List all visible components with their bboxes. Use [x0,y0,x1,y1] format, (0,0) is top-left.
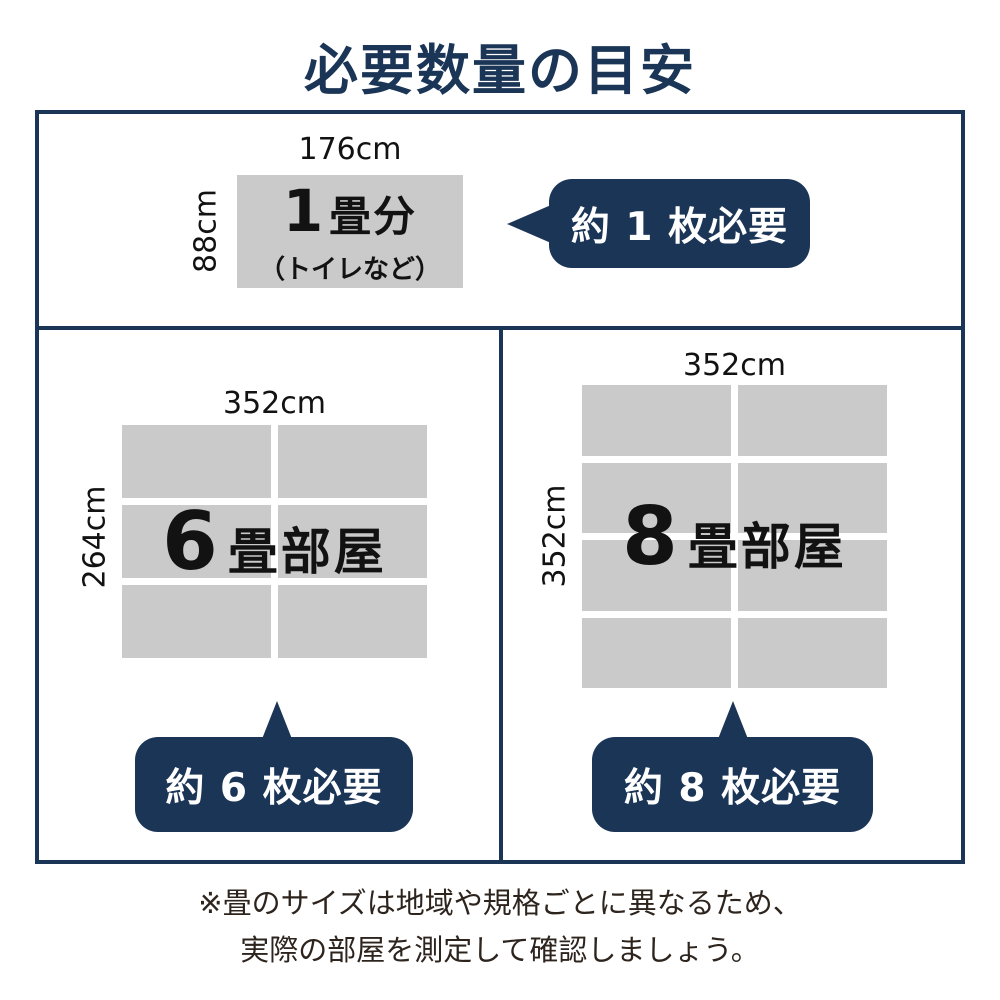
six-mat-grid [122,425,427,658]
footer-note: ※畳のサイズは地域や規格ごとに異なるため、 実際の部屋を測定して確認しましょう。 [0,880,1000,974]
six-mat-badge: 約 6 枚必要 [135,737,413,832]
eight-mat-badge: 約 8 枚必要 [592,737,873,832]
tatami-mat-cell [278,425,427,498]
tatami-mat-cell [582,463,731,534]
page-title: 必要数量の目安 [0,26,1000,105]
vertical-divider [499,326,503,860]
tatami-mat-cell [582,618,731,689]
tatami-mat-cell [582,385,731,456]
tatami-mat-cell [738,540,887,611]
footer-note-line2: 実際の部屋を測定して確認しましょう。 [0,927,1000,974]
tatami-mat-cell [278,505,427,578]
one-mat-sub-label: （トイレなど） [259,249,441,286]
one-mat-badge: 約 1 枚必要 [549,179,810,268]
one-mat-height-label: 88cm [189,189,224,273]
six-mat-height-label: 264cm [78,486,113,589]
six-mat-width-label: 352cm [122,386,427,421]
tatami-mat-cell [122,425,271,498]
eight-mat-height-label: 352cm [538,485,573,588]
one-mat-unit: 畳分 [329,183,417,244]
tatami-mat-cell [738,463,887,534]
one-mat-width-label: 176cm [237,132,463,167]
badge-tail-left-icon [507,205,551,243]
tatami-mat-cell [738,385,887,456]
badge-tail-up-icon [718,701,748,739]
tatami-mat-cell [122,505,271,578]
eight-mat-width-label: 352cm [582,348,887,383]
one-mat-count: 1 [283,177,323,245]
tatami-mat-cell [738,618,887,689]
tatami-mat-cell [582,540,731,611]
one-mat-rectangle: 1 畳分 （トイレなど） [237,175,463,288]
badge-tail-up-icon [262,701,292,739]
tatami-mat-cell [278,585,427,658]
footer-note-line1: ※畳のサイズは地域や規格ごとに異なるため、 [0,880,1000,927]
one-mat-room-label: 1 畳分 [283,177,417,245]
eight-mat-grid [582,385,887,688]
tatami-mat-cell [122,585,271,658]
